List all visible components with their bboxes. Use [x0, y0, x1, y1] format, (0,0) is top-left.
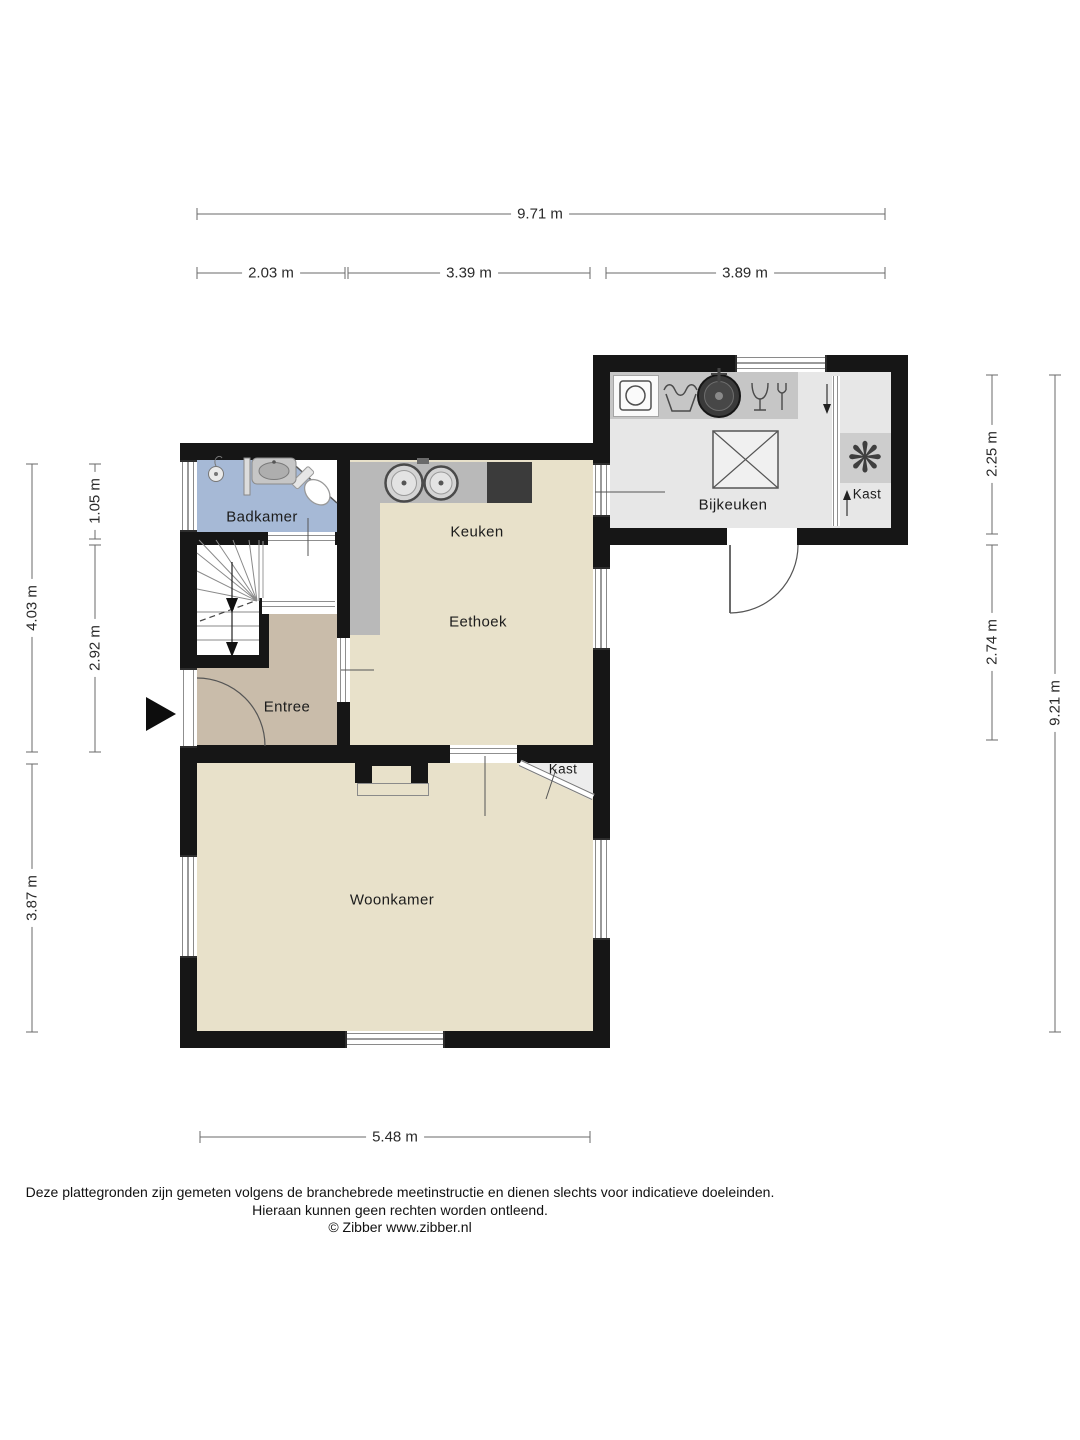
- room-label-entree: Entree: [264, 699, 311, 716]
- washing-machine-icon: [620, 381, 651, 410]
- washbasin: [252, 458, 296, 484]
- room-label-bijkeuken: Bijkeuken: [699, 497, 768, 514]
- dishwasher-icon: [752, 383, 786, 410]
- copyright-line: © Zibber www.zibber.nl: [0, 1219, 800, 1237]
- dim-left-inner-top: 1.05 m: [87, 472, 104, 530]
- room-label-woonkamer: Woonkamer: [350, 892, 434, 909]
- kitchen-sink: [386, 458, 458, 502]
- dim-right-outer: 9.21 m: [1047, 674, 1064, 732]
- mechanical-ventilation-icon: ❋: [847, 437, 882, 479]
- dim-left-outer-bottom: 3.87 m: [24, 869, 41, 927]
- dim-left-inner-bottom: 2.92 m: [87, 619, 104, 677]
- stairs-down-arrow: [226, 598, 238, 613]
- installation-box: [713, 431, 778, 488]
- room-label-badkamer: Badkamer: [226, 509, 298, 526]
- room-label-eethoek: Eethoek: [449, 614, 507, 631]
- garden-door-swing: [730, 545, 798, 613]
- room-label-keuken: Keuken: [450, 524, 503, 541]
- dim-top-seg2: 3.39 m: [440, 265, 498, 282]
- dim-top-total: 9.71 m: [511, 206, 569, 223]
- room-label-kast-woonkamer: Kast: [549, 762, 578, 777]
- dim-right-inner-bottom: 2.74 m: [984, 613, 1001, 671]
- bathroom-fixtures: [209, 456, 338, 511]
- handwash-icon: [664, 385, 697, 411]
- front-door-swing: [197, 678, 265, 746]
- disclaimer-line2: Hieraan kunnen geen rechten worden ontle…: [0, 1202, 800, 1220]
- disclaimer: Deze plattegronden zijn gemeten volgens …: [0, 1184, 800, 1237]
- floorplan-page: Badkamer Keuken Eethoek Entree Bijkeuken…: [0, 0, 1080, 1440]
- dim-bottom: 5.48 m: [366, 1129, 424, 1146]
- dimension-lines: [26, 208, 1061, 1143]
- disclaimer-line1: Deze plattegronden zijn gemeten volgens …: [0, 1184, 800, 1202]
- entrance-arrow: [146, 697, 176, 731]
- shower-head-icon: [209, 456, 224, 481]
- dim-right-inner-top: 2.25 m: [984, 425, 1001, 483]
- stairs-down-arrow: [226, 642, 238, 657]
- radiator: [244, 458, 250, 495]
- dim-left-outer-top: 4.03 m: [24, 579, 41, 637]
- staircase: [197, 540, 263, 640]
- dim-top-seg1: 2.03 m: [242, 265, 300, 282]
- room-label-kast-bijkeuken: Kast: [853, 487, 882, 502]
- dim-top-seg3: 3.89 m: [716, 265, 774, 282]
- door-ticks: [308, 492, 665, 816]
- utility-sink: [698, 368, 740, 417]
- bijkeuken-fixtures: [620, 368, 851, 516]
